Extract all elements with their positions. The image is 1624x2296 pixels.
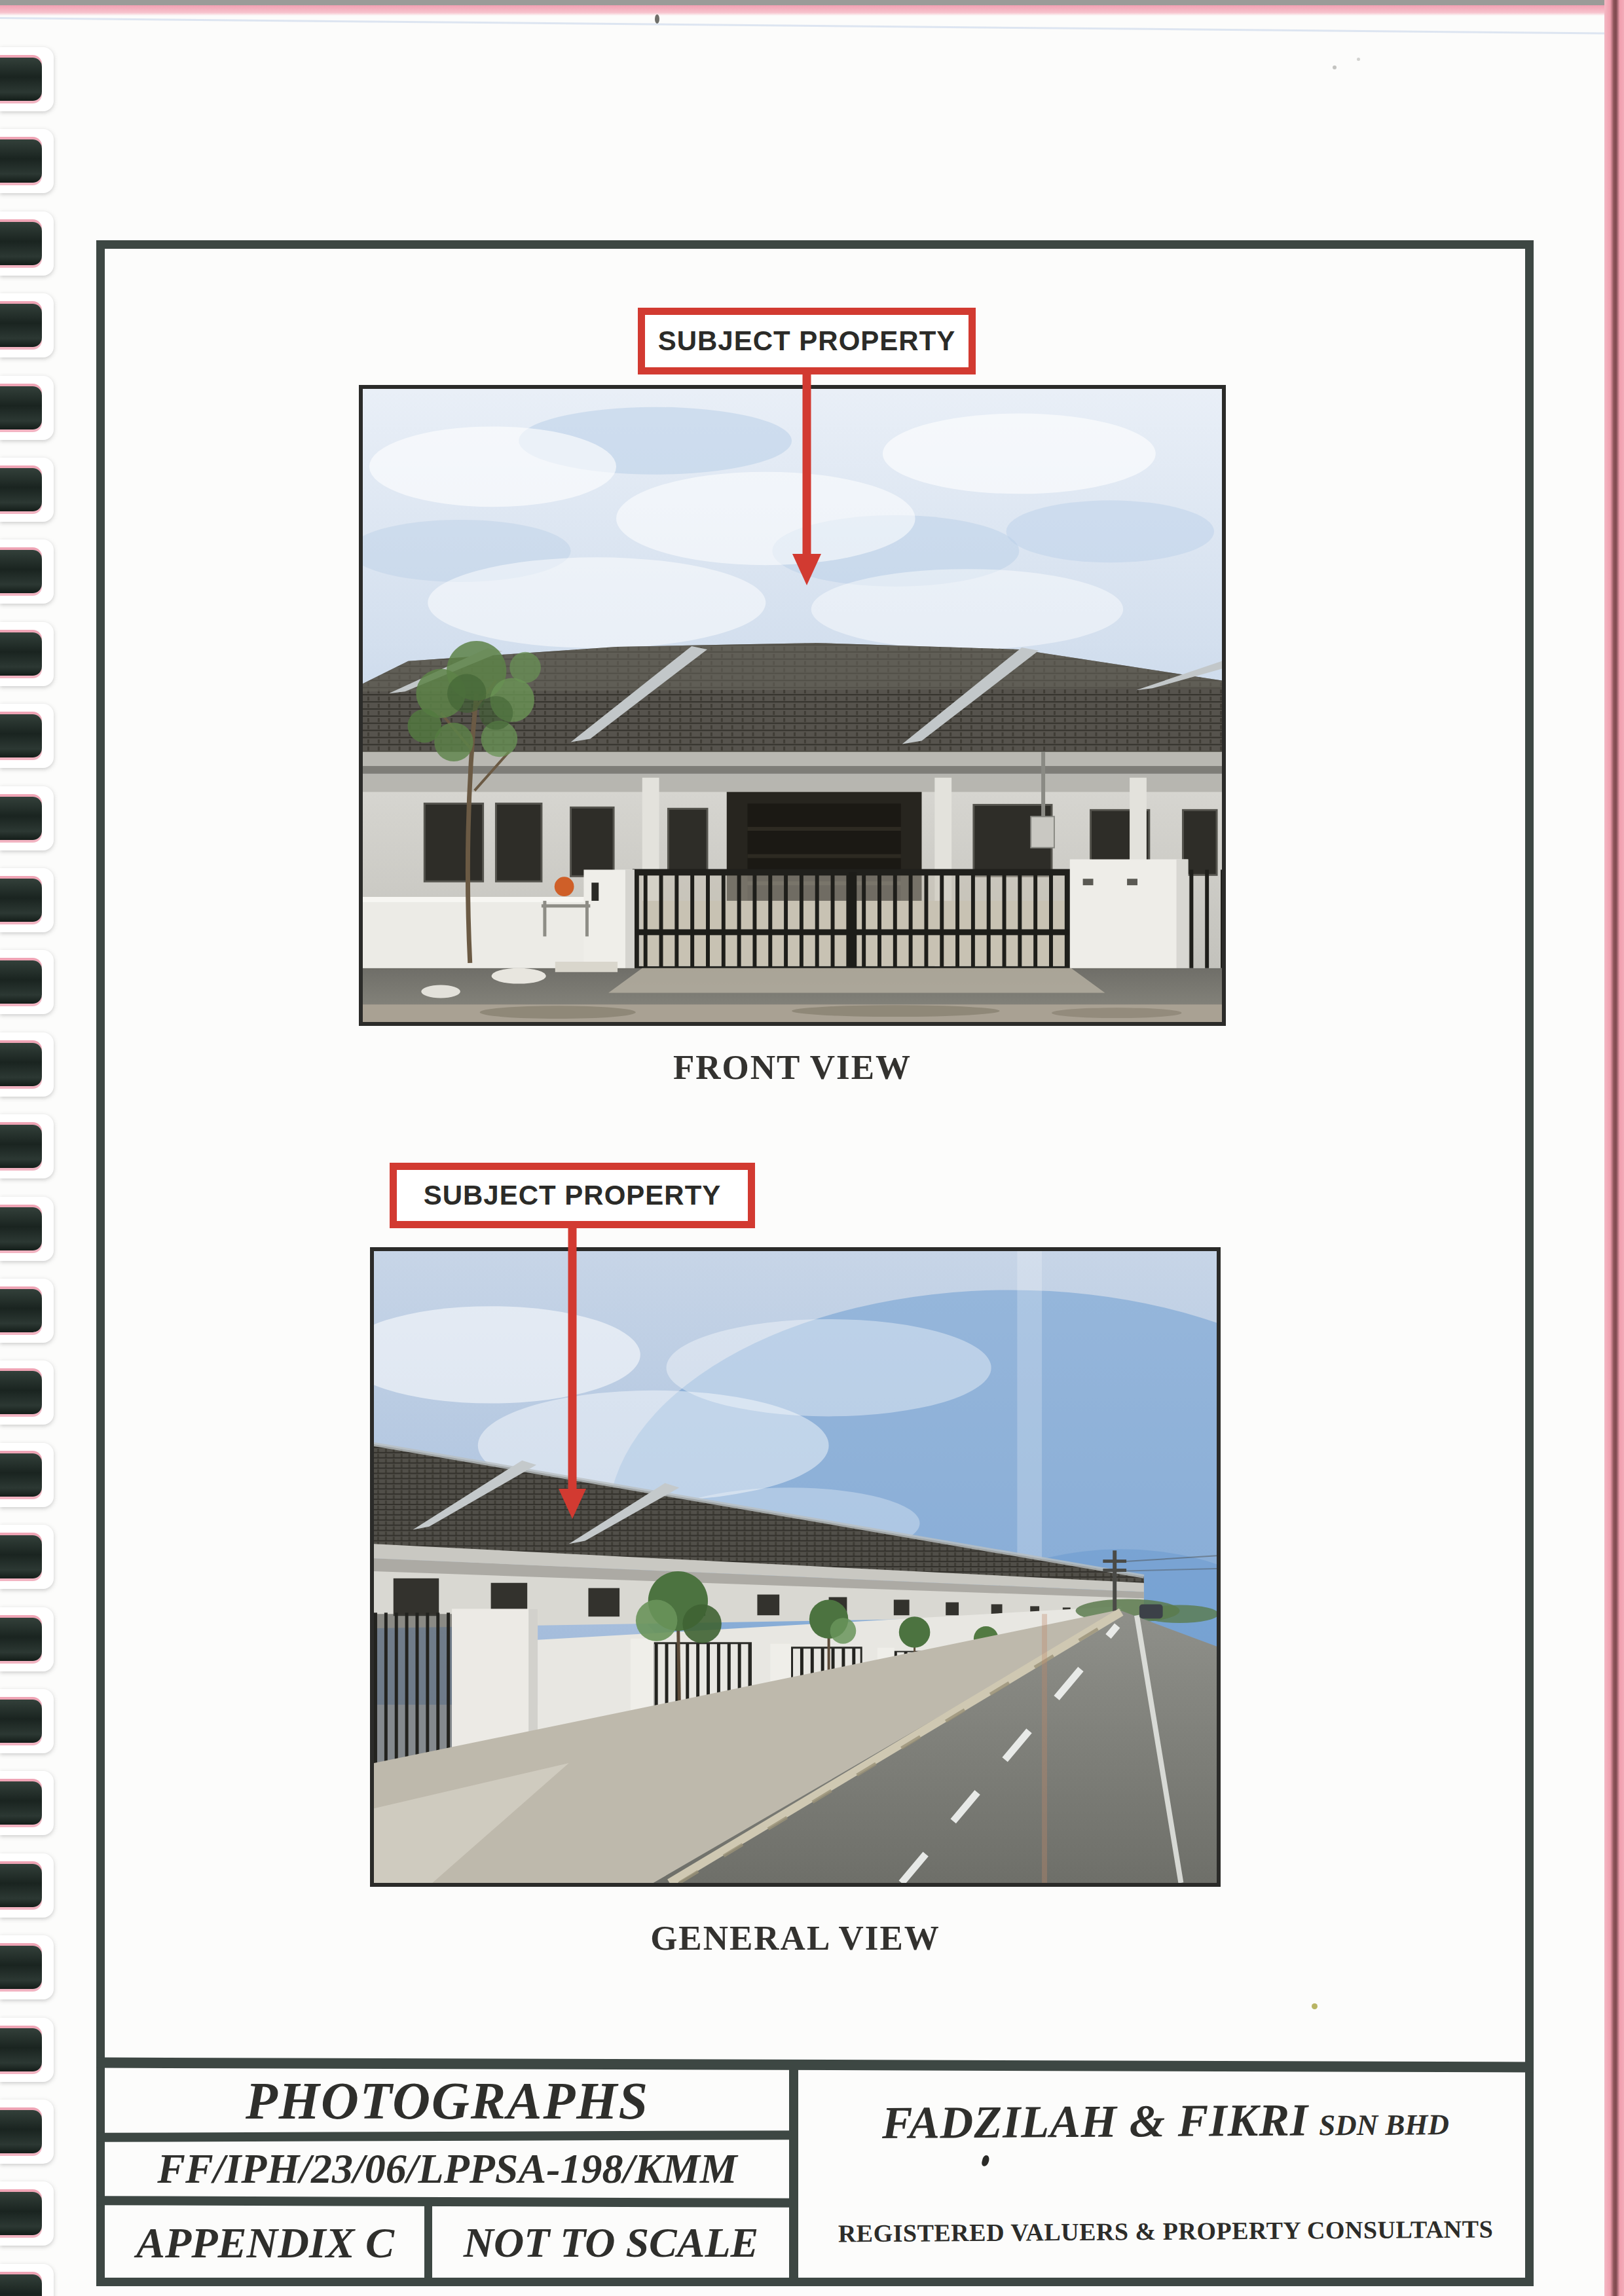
caption-general-view: GENERAL VIEW — [370, 1918, 1221, 1958]
binding-comb — [0, 129, 54, 193]
binding-comb-loop — [0, 960, 42, 1004]
binding-comb-loop — [0, 1781, 42, 1825]
binding-comb — [0, 458, 54, 522]
binding-comb-loop — [0, 2192, 42, 2235]
binding-comb-loop — [0, 1125, 42, 1168]
footer-company-tagline: REGISTERED VALUERS & PROPERTY CONSULTANT… — [805, 2202, 1526, 2260]
front-view-driveway — [363, 962, 1222, 1022]
binding-comb — [0, 2264, 54, 2296]
binding-comb-loop — [0, 879, 42, 922]
photo-general-view — [370, 1247, 1221, 1887]
binding-comb-loop — [0, 304, 42, 347]
binding-comb — [0, 1360, 54, 1425]
binding-comb — [0, 1771, 54, 1835]
binding-comb — [0, 1607, 54, 1671]
binding-comb — [0, 1525, 54, 1589]
binding-comb — [0, 950, 54, 1014]
binding-comb — [0, 1935, 54, 1999]
binding-comb-loop — [0, 550, 42, 593]
dust-speck — [655, 14, 659, 24]
scanned-report-page: SUBJECT PROPERTY — [0, 0, 1624, 2296]
binding-comb — [0, 1443, 54, 1507]
binding-comb — [0, 539, 54, 604]
red-arrow-down-icon-1 — [790, 371, 824, 587]
subject-property-label-2: SUBJECT PROPERTY — [424, 1180, 722, 1211]
footer-appendix: APPENDIX C — [105, 2209, 426, 2277]
binding-comb-loop — [0, 1289, 42, 1332]
binding-comb-loop — [0, 797, 42, 840]
subject-property-label-1: SUBJECT PROPERTY — [658, 325, 956, 357]
scan-right-pink-edge — [1604, 0, 1624, 2296]
binding-comb-loop — [0, 2028, 42, 2071]
binding-comb-loop — [0, 222, 42, 265]
footer-title: PHOTOGRAPHS — [105, 2070, 790, 2132]
binding-comb-loop — [0, 1535, 42, 1578]
binding-comb-loop — [0, 1946, 42, 1989]
footer-company: FADZILAH & FIKRI SDN BHD — [805, 2092, 1526, 2176]
scan-blue-streak — [0, 17, 1624, 35]
binding-comb — [0, 1689, 54, 1753]
binding-comb-loop — [0, 2274, 42, 2296]
binding-comb-loop — [0, 1618, 42, 1661]
binding-comb-loop — [0, 1700, 42, 1743]
binding-comb-loop — [0, 139, 42, 183]
footer-scale-note: NOT TO SCALE — [432, 2209, 790, 2277]
binding-comb — [0, 2018, 54, 2082]
binding-comb — [0, 47, 54, 111]
binding-comb — [0, 211, 54, 276]
scan-top-pink-band — [0, 5, 1624, 16]
binding-comb — [0, 1197, 54, 1261]
binding-comb-loop — [0, 1864, 42, 1907]
dust-speck — [1333, 65, 1337, 69]
footer-reference: FF/IPH/23/06/LPPSA-198/KMM — [105, 2141, 790, 2197]
subject-property-box-1: SUBJECT PROPERTY — [638, 308, 976, 374]
binding-comb-loop — [0, 714, 42, 757]
binding-comb-loop — [0, 468, 42, 511]
binding-comb-loop — [0, 1207, 42, 1250]
binding-comb — [0, 1853, 54, 1918]
subject-property-box-2: SUBJECT PROPERTY — [390, 1163, 755, 1228]
binding-comb — [0, 622, 54, 686]
binding-comb — [0, 1032, 54, 1097]
red-arrow-down-icon-2 — [555, 1226, 589, 1522]
binding-comb — [0, 293, 54, 357]
table-column-divider — [789, 2060, 798, 2286]
scan-top-edge — [0, 0, 1624, 5]
binding-comb — [0, 2181, 54, 2246]
binding-comb — [0, 1279, 54, 1343]
binding-comb — [0, 2100, 54, 2164]
binding-comb-loop — [0, 1371, 42, 1414]
binding-comb — [0, 376, 54, 440]
binding-comb — [0, 1114, 54, 1178]
binding-comb-loop — [0, 58, 42, 101]
footer-company-suffix: SDN BHD — [1319, 2107, 1449, 2142]
caption-front-view: FRONT VIEW — [359, 1048, 1226, 1087]
footer-company-name: FADZILAH & FIKRI — [881, 2094, 1308, 2149]
binding-comb-loop — [0, 1453, 42, 1497]
binding-comb — [0, 786, 54, 850]
binding-comb-loop — [0, 386, 42, 429]
binding-comb-loop — [0, 1043, 42, 1086]
dust-speck — [1357, 58, 1360, 61]
binding-comb — [0, 704, 54, 768]
binding-comb-loop — [0, 632, 42, 676]
binding-comb-loop — [0, 2110, 42, 2153]
binding-comb — [0, 868, 54, 932]
